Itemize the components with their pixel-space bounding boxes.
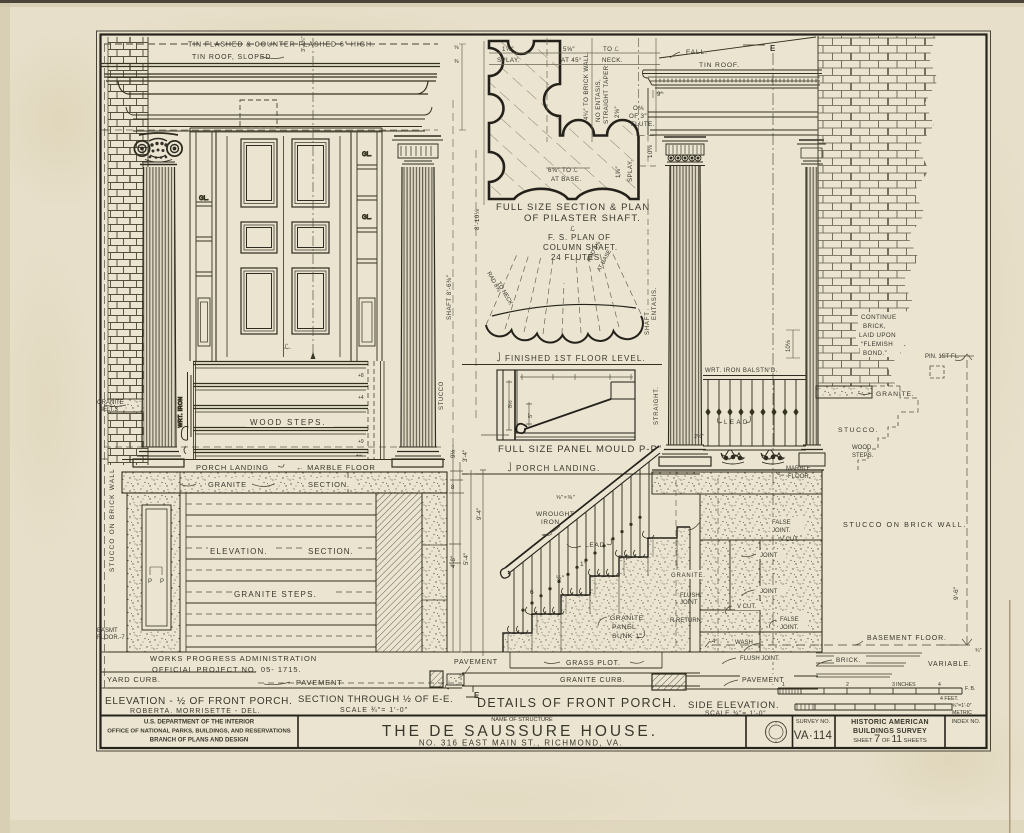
svg-text:4′-8″: 4′-8″ — [451, 555, 457, 568]
svg-text:WOOD: WOOD — [852, 445, 872, 451]
svg-text:GRANITE.: GRANITE. — [876, 391, 915, 398]
svg-text:BASEMENT FLOOR.: BASEMENT FLOOR. — [867, 635, 947, 642]
svg-text:STUCCO: STUCCO — [439, 381, 445, 410]
svg-text:+4: +4 — [358, 395, 364, 401]
svg-text:WORKS PROGRESS ADMINISTRATIO: WORKS PROGRESS ADMINISTRATION — [150, 654, 317, 663]
svg-text:BUILDINGS SURVEY: BUILDINGS SURVEY — [853, 728, 927, 735]
svg-text:F. B.: F. B. — [965, 686, 975, 692]
svg-text:FALL.: FALL. — [686, 49, 708, 56]
svg-text:ℒ.: ℒ. — [284, 343, 291, 351]
svg-text:TIN FLASHED & COUNTER FLASHED: TIN FLASHED & COUNTER FLASHED 6″ HIGH. — [188, 42, 375, 49]
svg-text:BRANCH OF PLANS AND DESIGN: BRANCH OF PLANS AND DESIGN — [150, 737, 249, 744]
svg-text:WOOD STEPS.: WOOD STEPS. — [250, 418, 326, 427]
svg-text:BASMT: BASMT — [97, 628, 118, 634]
svg-text:4¼″ TO BRICK WALL.: 4¼″ TO BRICK WALL. — [583, 51, 590, 120]
svg-text:L E A D: L E A D — [724, 420, 748, 426]
svg-text:ELEVATION.: ELEVATION. — [210, 547, 268, 556]
svg-text:SPLAY.: SPLAY. — [627, 159, 634, 182]
svg-text:STRAIGHT.: STRAIGHT. — [654, 386, 660, 425]
svg-text:⅝″×⅜″: ⅝″×⅜″ — [556, 495, 575, 501]
svg-text:STUCCO.: STUCCO. — [838, 427, 879, 434]
svg-text:5′-4″: 5′-4″ — [464, 552, 470, 565]
svg-text:GL.: GL. — [362, 215, 372, 221]
svg-text:+8: +8 — [358, 373, 364, 379]
svg-text:GRASS PLOT.: GRASS PLOT. — [566, 660, 621, 667]
svg-text:2: 2 — [846, 682, 849, 688]
svg-text:GRANITE STEPS.: GRANITE STEPS. — [234, 590, 317, 599]
svg-text:9′-6″: 9′-6″ — [953, 586, 960, 600]
svg-text:AT BASE.: AT BASE. — [551, 176, 581, 183]
svg-text:10⅛: 10⅛ — [786, 339, 792, 352]
svg-text:WRT. IRON: WRT. IRON — [178, 396, 184, 427]
svg-text:BRICK,: BRICK, — [863, 323, 886, 330]
svg-text:ℒ: ℒ — [570, 225, 575, 233]
svg-text:GRANITE: GRANITE — [610, 615, 644, 622]
svg-text:½″: ½″ — [556, 574, 565, 582]
svg-text:THE DE SAUSSURE HOUSE.: THE DE SAUSSURE HOUSE. — [382, 723, 658, 740]
svg-text:JOINT: JOINT — [680, 600, 698, 606]
svg-text:FLUSH JOINT.: FLUSH JOINT. — [740, 656, 780, 662]
svg-text:V CUT.: V CUT. — [737, 604, 756, 610]
svg-text:NECK.: NECK. — [602, 57, 623, 64]
svg-text:INCHES: INCHES — [896, 682, 916, 688]
svg-text:WRT. IRON BALSTN′D.: WRT. IRON BALSTN′D. — [705, 368, 778, 374]
svg-text:¾″=1′-0″: ¾″=1′-0″ — [952, 703, 972, 709]
svg-text:NO ENTASIS,: NO ENTASIS, — [595, 79, 602, 122]
svg-text:SUNK 1″: SUNK 1″ — [612, 633, 643, 640]
svg-text:V CUT.: V CUT. — [780, 537, 799, 543]
svg-text:P: P — [148, 579, 152, 585]
svg-text:TO ℒ: TO ℒ — [603, 46, 619, 53]
svg-text:GL.: GL. — [362, 152, 372, 158]
svg-text:1: 1 — [782, 682, 785, 688]
svg-text:INDEX NO.: INDEX NO. — [952, 719, 981, 725]
svg-text:PAVEMENT: PAVEMENT — [454, 659, 498, 666]
svg-text:LEAD: LEAD — [585, 542, 605, 549]
svg-text:5″: 5″ — [528, 413, 534, 418]
svg-text:9½: 9½ — [450, 450, 457, 458]
svg-text:PIN. 1ST FL.: PIN. 1ST FL. — [925, 354, 960, 360]
svg-text:3: 3 — [892, 682, 895, 688]
svg-text:GRANITE.: GRANITE. — [671, 573, 706, 579]
svg-text:SECTION THROUGH ½ OF E-E.: SECTION THROUGH ½ OF E-E. — [298, 694, 453, 705]
svg-text:STUCCO ON BRICK WALL.: STUCCO ON BRICK WALL. — [843, 520, 967, 529]
svg-text:8½: 8½ — [507, 400, 514, 408]
svg-text:2½″: 2½″ — [694, 433, 704, 440]
svg-text:3′-4¾″: 3′-4¾″ — [301, 36, 307, 52]
svg-text:8′-10⅛: 8′-10⅛ — [474, 208, 481, 230]
svg-text:PANEL: PANEL — [612, 624, 636, 631]
svg-text:NO. 316 EAST MAIN ST., RICHMON: NO. 316 EAST MAIN ST., RICHMOND, VA. — [419, 739, 623, 748]
svg-text:DETAILS OF FRONT PORCH.: DETAILS OF FRONT PORCH. — [477, 696, 677, 710]
svg-text:10⅛: 10⅛ — [647, 144, 654, 158]
svg-text:OFFICIAL PROJECT NO. 05- 171: OFFICIAL PROJECT NO. 05- 1715. — [152, 665, 302, 674]
svg-text:R RETURN.: R RETURN. — [670, 618, 703, 624]
svg-text:LAID UPON: LAID UPON — [859, 332, 896, 339]
svg-text:9′-4″: 9′-4″ — [477, 507, 483, 520]
svg-text:ELEVATION - ½ OF FRONT PORCH.: ELEVATION - ½ OF FRONT PORCH. — [105, 696, 293, 707]
svg-text:FLOOR.-7: FLOOR.-7 — [97, 635, 125, 641]
svg-text:U.S. DEPARTMENT OF THE INTERIO: U.S. DEPARTMENT OF THE INTERIOR — [144, 719, 255, 726]
svg-text:OF 3″: OF 3″ — [629, 113, 647, 120]
svg-text:FULL SIZE SECTION & PLAN: FULL SIZE SECTION & PLAN — [496, 202, 650, 213]
svg-text:BRICK.: BRICK. — [836, 657, 861, 664]
svg-text:ROBERTA. MORRISETTE - DEL.: ROBERTA. MORRISETTE - DEL. — [130, 708, 261, 715]
svg-text:PORCH LANDING.: PORCH LANDING. — [516, 464, 600, 473]
svg-text:FULL SIZE PANEL MOULD P-P″: FULL SIZE PANEL MOULD P-P″ — [498, 444, 662, 455]
svg-text:GRANITE: GRANITE — [208, 480, 247, 489]
svg-text:1⅝″: 1⅝″ — [502, 46, 514, 53]
svg-text:SHAFT: SHAFT — [645, 311, 651, 335]
svg-text:+9: +9 — [358, 439, 364, 445]
svg-text:AT 45°: AT 45° — [561, 57, 582, 64]
svg-text:BELT.3: BELT.3 — [99, 407, 119, 413]
svg-text:FALSE: FALSE — [780, 617, 799, 623]
svg-text:STUCCO ON BRICK WALL: STUCCO ON BRICK WALL — [109, 468, 116, 572]
svg-text:YARD CURB.: YARD CURB. — [107, 675, 161, 684]
svg-text:JOINT.: JOINT. — [780, 625, 799, 631]
svg-text:¾″: ¾″ — [975, 648, 982, 654]
svg-text:STRAIGHT TAPER: STRAIGHT TAPER — [603, 65, 610, 124]
svg-text:FLUSH: FLUSH — [680, 593, 700, 599]
svg-text:P: P — [160, 579, 164, 585]
svg-text:FINISHED 1ST FLOOR LEVEL.: FINISHED 1ST FLOOR LEVEL. — [505, 354, 646, 363]
svg-text:METRIC: METRIC — [952, 710, 972, 716]
svg-text:JOINT: JOINT — [760, 553, 778, 559]
svg-text:⅝: ⅝ — [454, 45, 459, 51]
svg-text:FLUTE.: FLUTE. — [631, 121, 655, 128]
svg-text:GL.: GL. — [199, 196, 209, 202]
svg-text:MARBLE: MARBLE — [786, 466, 811, 472]
svg-text:SURVEY NO.: SURVEY NO. — [796, 719, 831, 725]
svg-text:SPLAY.: SPLAY. — [497, 57, 520, 64]
svg-text:6: 6 — [530, 589, 534, 596]
svg-text:GRANITE CURB.: GRANITE CURB. — [560, 677, 625, 684]
svg-text:4 FEET.: 4 FEET. — [940, 696, 958, 702]
svg-text:FALSE: FALSE — [772, 520, 791, 526]
svg-text:ENTASIS.: ENTASIS. — [652, 287, 658, 320]
svg-text:BOND.”: BOND.” — [863, 350, 887, 357]
svg-text:HISTORIC AMERICAN: HISTORIC AMERICAN — [851, 719, 929, 726]
svg-text:SHAFT 8′-6⅜″: SHAFT 8′-6⅜″ — [447, 274, 453, 320]
svg-text:JOINT: JOINT — [760, 589, 778, 595]
svg-text:STEPS.: STEPS. — [852, 453, 874, 459]
svg-text:OFFICE OF NATIONAL PARKS, BUIL: OFFICE OF NATIONAL PARKS, BUILDINGS, AND… — [107, 729, 290, 735]
svg-text:WROUGHT: WROUGHT — [536, 511, 575, 518]
svg-text:CONTINUE: CONTINUE — [861, 314, 897, 321]
svg-text:TIN ROOF.: TIN ROOF. — [699, 62, 740, 69]
svg-text:E: E — [770, 44, 776, 53]
svg-text:3′-4″: 3′-4″ — [463, 449, 469, 462]
svg-text:SECTION.: SECTION. — [308, 547, 354, 556]
svg-text:1″: 1″ — [580, 561, 587, 568]
svg-text:SCALE ¾″= 1′-0″: SCALE ¾″= 1′-0″ — [340, 707, 408, 714]
svg-text:6⅝″ TO ℒ: 6⅝″ TO ℒ — [548, 167, 578, 174]
svg-text:2⅝″: 2⅝″ — [614, 106, 621, 118]
svg-text:4: 4 — [938, 682, 941, 688]
svg-text:“FLEMISH: “FLEMISH — [861, 341, 893, 348]
svg-text:GRANITE: GRANITE — [97, 400, 124, 406]
svg-text:SECTION.: SECTION. — [308, 480, 350, 489]
svg-text:PAVEMENT: PAVEMENT — [296, 678, 343, 687]
svg-text:JOINT.: JOINT. — [772, 528, 791, 534]
svg-text:P-P: P-P — [618, 555, 631, 562]
svg-text:1⅝″: 1⅝″ — [615, 166, 622, 178]
svg-text:VARIABLE.: VARIABLE. — [928, 661, 972, 668]
svg-text:F. S. PLAN OF: F. S. PLAN OF — [548, 233, 611, 242]
svg-text:+∞: +∞ — [356, 453, 363, 459]
svg-text:⅜: ⅜ — [454, 59, 459, 65]
svg-text:5⅝″: 5⅝″ — [563, 46, 575, 53]
svg-text:SCALE ¾″= 1′-0″: SCALE ¾″= 1′-0″ — [705, 710, 766, 717]
svg-text:VA·114: VA·114 — [794, 730, 833, 742]
svg-text:PORCH LANDING: PORCH LANDING — [196, 463, 269, 472]
svg-text:TIN ROOF, SLOPED: TIN ROOF, SLOPED — [192, 54, 271, 61]
svg-text:PAVEMENT: PAVEMENT — [742, 677, 784, 684]
svg-text:O⅛: O⅛ — [633, 105, 644, 112]
svg-text:← MARBLE FLOOR: ← MARBLE FLOOR — [296, 463, 376, 472]
svg-text:IRON: IRON — [541, 519, 560, 526]
svg-text:OF PILASTER SHAFT.: OF PILASTER SHAFT. — [524, 213, 641, 224]
